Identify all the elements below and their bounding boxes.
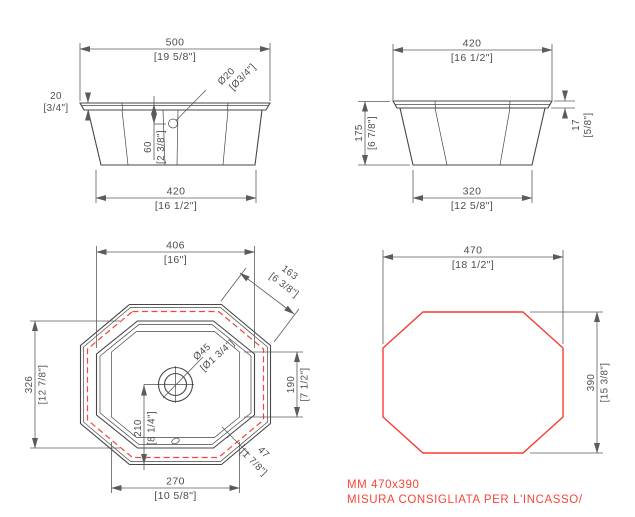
cutout-width-in: [18 1/2"] xyxy=(452,259,494,271)
front-body-outline xyxy=(88,110,262,165)
cutout-note-line1: MM 470x390 xyxy=(347,479,419,491)
top-view: Ø45 [Ø1 3/4"] 406 [16"] 163 [6 3/8"] xyxy=(24,240,311,503)
side-base-width-in: [12 5/8"] xyxy=(451,200,493,212)
top-body-width-mm: 406 xyxy=(166,240,185,252)
front-rim-thickness-in: [3/4"] xyxy=(44,103,69,114)
front-overflow-depth-in: [2 3/8"] xyxy=(156,130,167,164)
cutout-dim-height: 390 [15 3/8"] xyxy=(530,312,611,453)
cutout-note: MM 470x390 MISURA CONSIGLIATA PER L'INCA… xyxy=(347,479,583,506)
top-body-depth-in: [12 7/8"] xyxy=(38,365,49,405)
side-dim-base-width: 320 [12 5/8"] xyxy=(413,170,532,212)
front-overall-width-in: [19 5/8"] xyxy=(154,51,196,63)
side-base-width-mm: 320 xyxy=(463,186,482,198)
top-drain-offset-in: [8 1/4"] xyxy=(147,411,158,445)
top-inner-side-span-mm: 190 xyxy=(286,376,297,394)
basin-technical-drawing: 500 [19 5/8"] 20 [3/4"] xyxy=(0,0,635,517)
top-dim-bottom-width: 270 [10 5/8"] xyxy=(112,442,240,502)
side-overall-width-in: [16 1/2"] xyxy=(451,52,493,64)
top-dim-corner-facet: 163 [6 3/8"] xyxy=(221,260,309,342)
top-dim-body-depth: 326 [12 7/8"] xyxy=(24,321,120,448)
top-body-width-in: [16"] xyxy=(164,254,187,266)
front-base-width-in: [16 1/2"] xyxy=(155,200,197,212)
side-body-outline xyxy=(400,108,545,165)
top-drain-offset-mm: 210 xyxy=(133,419,144,437)
front-dim-base-width: 420 [16 1/2"] xyxy=(96,170,256,212)
cutout-dim-width: 470 [18 1/2"] xyxy=(383,245,563,345)
top-body-depth-mm: 326 xyxy=(24,376,35,394)
top-view-overflow-hole xyxy=(171,437,180,445)
side-dim-height: 175 [6 7/8"] xyxy=(354,102,410,166)
side-rim-outline xyxy=(393,101,552,108)
side-view: 420 [16 1/2"] 175 [6 7/8"] 17 xyxy=(354,38,594,213)
side-height-in: [6 7/8"] xyxy=(367,116,378,150)
front-rim-thickness-mm: 20 xyxy=(50,91,62,102)
side-height-mm: 175 xyxy=(354,124,365,142)
front-view: 500 [19 5/8"] 20 [3/4"] xyxy=(44,37,270,213)
top-bottom-width-mm: 270 xyxy=(166,476,185,488)
top-inner-side-span-in: [7 1/2"] xyxy=(300,368,311,402)
front-base-width-mm: 420 xyxy=(167,186,186,198)
front-overflow-hole: Ø20 [Ø3/4"] xyxy=(169,53,259,128)
cutout-height-mm: 390 xyxy=(586,374,597,392)
side-rim-thickness-mm: 17 xyxy=(571,119,582,131)
cutout-width-mm: 470 xyxy=(464,245,483,257)
front-overall-width-mm: 500 xyxy=(166,37,185,49)
side-dim-overall-width: 420 [16 1/2"] xyxy=(393,38,552,101)
top-view-drain: Ø45 [Ø1 3/4"] xyxy=(157,328,237,403)
cutout-height-in: [15 3/8"] xyxy=(600,363,611,403)
front-overflow-depth-mm: 60 xyxy=(143,141,154,153)
top-bottom-width-in: [10 5/8"] xyxy=(154,490,196,502)
side-rim-thickness-in: [5/8"] xyxy=(583,113,594,138)
front-rim-outline xyxy=(80,103,270,110)
front-dim-overall-width: 500 [19 5/8"] xyxy=(80,37,270,102)
side-overall-width-mm: 420 xyxy=(463,38,482,50)
technical-drawing-sheet: 500 [19 5/8"] 20 [3/4"] xyxy=(0,0,635,517)
cutout-note-line2: MISURA CONSIGLIATA PER L'INCASSO/ xyxy=(347,494,583,506)
side-dim-rim-thickness: 17 [5/8"] xyxy=(551,92,594,137)
cutout-template-view: 470 [18 1/2"] 390 [15 3/8"] xyxy=(383,245,611,454)
cutout-octagon xyxy=(383,312,563,453)
